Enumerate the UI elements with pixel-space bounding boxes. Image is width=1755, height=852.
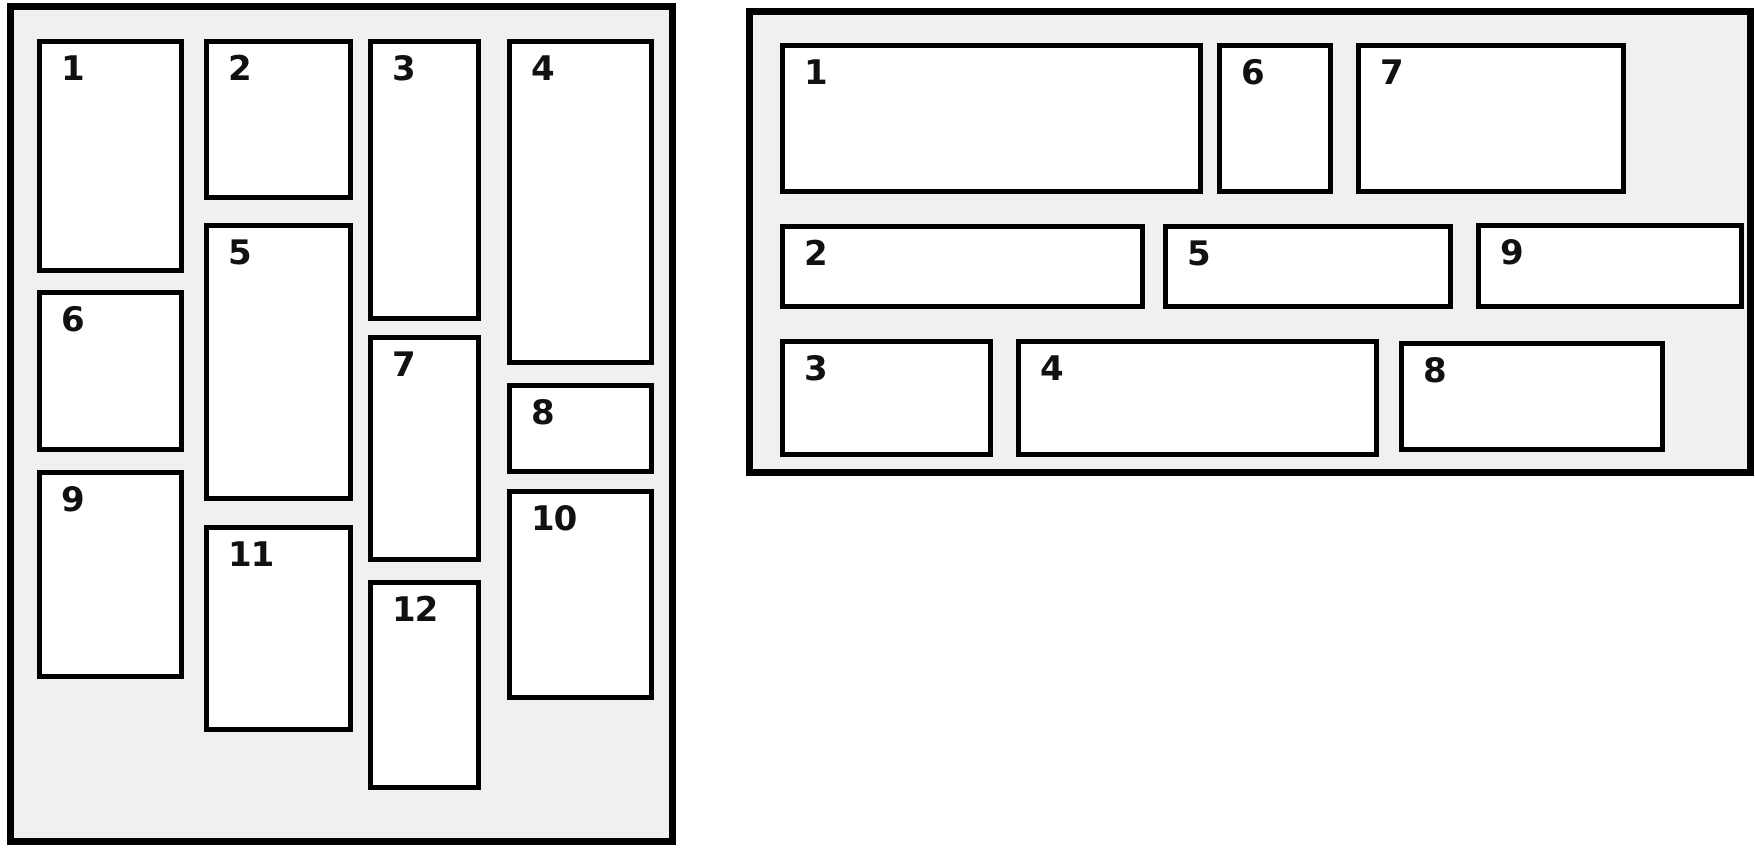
- left-masonry-item-9: 9: [37, 470, 184, 679]
- item-label: 7: [373, 340, 476, 382]
- right-masonry-item-5: 5: [1163, 224, 1453, 309]
- left-masonry-item-11: 11: [204, 525, 353, 732]
- item-label: 6: [1222, 48, 1328, 90]
- item-label: 7: [1361, 48, 1621, 90]
- right-masonry-item-4: 4: [1016, 339, 1379, 457]
- left-masonry-item-5: 5: [204, 223, 353, 501]
- right-masonry-item-8: 8: [1399, 341, 1665, 452]
- item-label: 4: [1021, 344, 1374, 386]
- left-masonry-item-12: 12: [368, 580, 481, 790]
- item-label: 1: [42, 44, 179, 86]
- left-masonry-item-1: 1: [37, 39, 184, 273]
- item-label: 9: [1481, 228, 1739, 270]
- item-label: 5: [209, 228, 348, 270]
- item-label: 5: [1168, 229, 1448, 271]
- left-masonry-item-3: 3: [368, 39, 481, 321]
- item-label: 1: [785, 48, 1198, 90]
- left-masonry-item-10: 10: [507, 489, 654, 700]
- item-label: 4: [512, 44, 649, 86]
- item-label: 3: [785, 344, 988, 386]
- right-masonry-item-1: 1: [780, 43, 1203, 194]
- item-label: 10: [512, 494, 649, 536]
- left-masonry-item-8: 8: [507, 383, 654, 474]
- item-label: 6: [42, 295, 179, 337]
- right-masonry-item-6: 6: [1217, 43, 1333, 194]
- horizontal-masonry-panel: 1 2 3 4 5 6 7 8 9: [746, 8, 1754, 476]
- right-masonry-item-3: 3: [780, 339, 993, 457]
- item-label: 3: [373, 44, 476, 86]
- left-masonry-item-2: 2: [204, 39, 353, 200]
- vertical-masonry-panel: 1 2 3 4 5 6 7 8 9 10 11 12: [7, 3, 676, 845]
- item-label: 8: [1404, 346, 1660, 388]
- item-label: 2: [785, 229, 1140, 271]
- left-masonry-item-4: 4: [507, 39, 654, 365]
- left-masonry-item-7: 7: [368, 335, 481, 562]
- item-label: 8: [512, 388, 649, 430]
- right-masonry-item-2: 2: [780, 224, 1145, 309]
- item-label: 12: [373, 585, 476, 627]
- item-label: 2: [209, 44, 348, 86]
- right-masonry-item-7: 7: [1356, 43, 1626, 194]
- left-masonry-item-6: 6: [37, 290, 184, 452]
- item-label: 9: [42, 475, 179, 517]
- item-label: 11: [209, 530, 348, 572]
- right-masonry-item-9: 9: [1476, 223, 1744, 309]
- masonry-layout-diagram: 1 2 3 4 5 6 7 8 9 10 11 12 1 2 3 4 5 6 7…: [0, 0, 1755, 852]
